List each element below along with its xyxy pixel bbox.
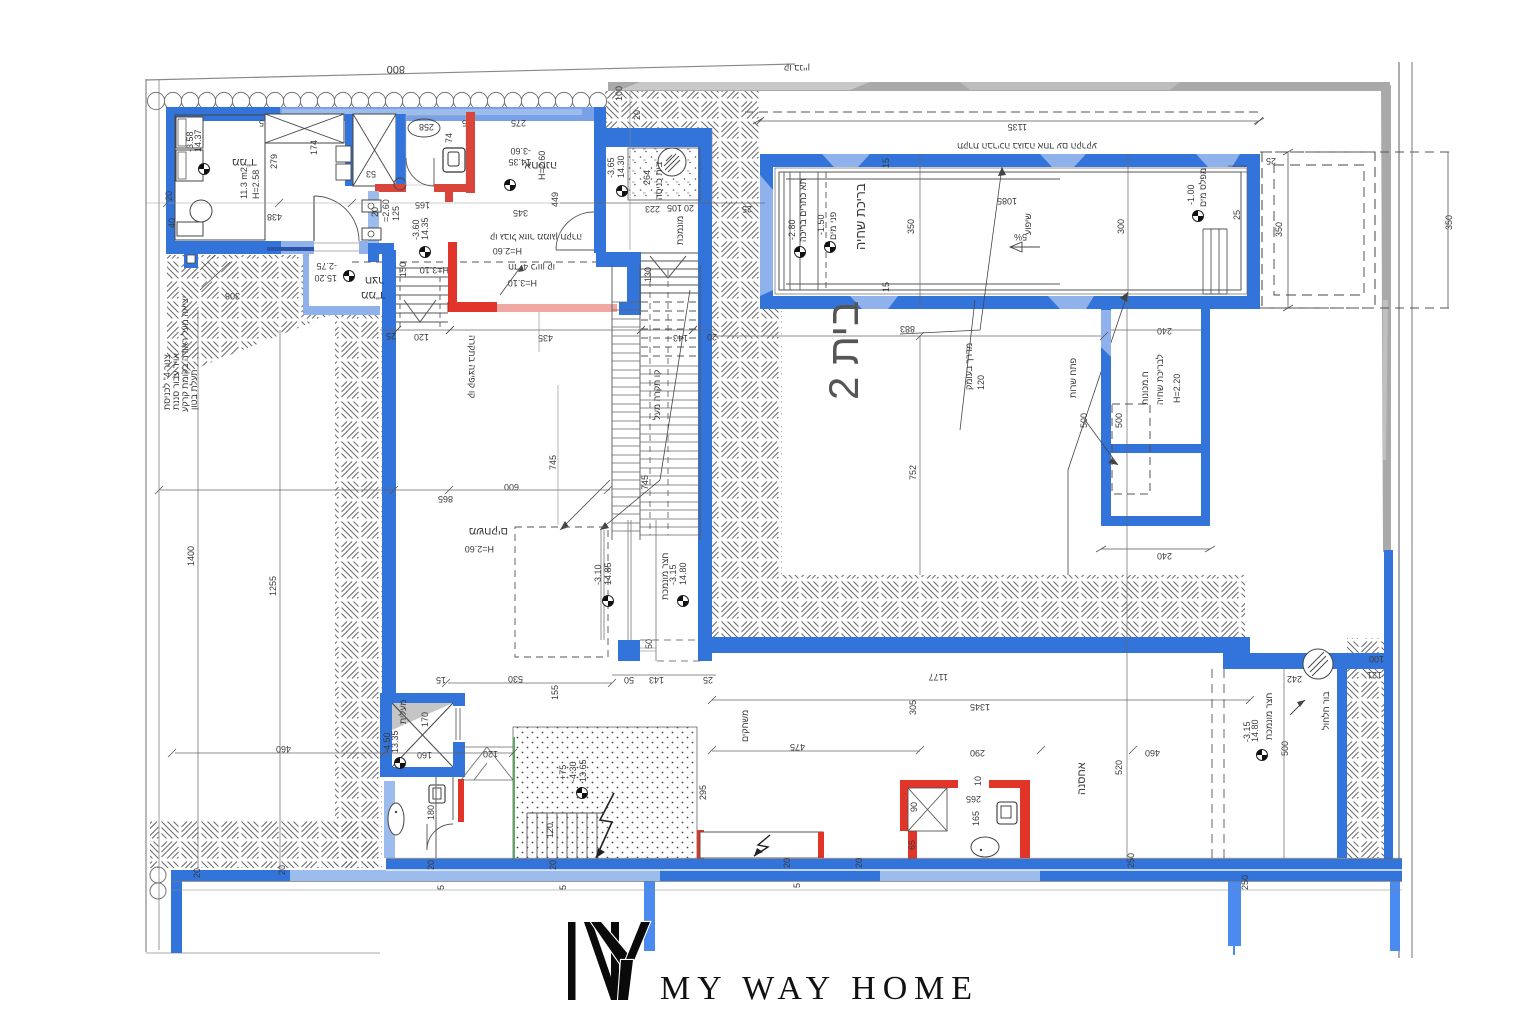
svg-text:40: 40 [167, 218, 177, 228]
svg-text:20: 20 [548, 860, 558, 870]
svg-text:800: 800 [387, 63, 405, 75]
svg-text:חד' 4 כיוון קו: חד' 4 כיוון קו [508, 262, 555, 272]
svg-text:1135: 1135 [1008, 122, 1027, 132]
svg-text:155: 155 [550, 685, 560, 700]
svg-text:14.30: 14.30 [616, 155, 626, 178]
svg-text:160: 160 [417, 750, 432, 760]
svg-text:13.35: 13.35 [390, 730, 400, 753]
svg-text:חצר מונמכת: חצר מונמכת [1264, 693, 1274, 740]
svg-text:בור חלחול: בור חלחול [1321, 691, 1331, 730]
svg-text:53: 53 [366, 169, 376, 179]
svg-text:475: 475 [790, 742, 805, 752]
svg-text:ממ"ד: ממ"ד [361, 289, 386, 301]
svg-text:240: 240 [1157, 326, 1172, 336]
svg-text:1400: 1400 [186, 546, 196, 566]
svg-text:קו קפיצה בתקרה: קו קפיצה בתקרה [467, 335, 477, 398]
svg-text:250: 250 [1240, 875, 1250, 890]
svg-text:20: 20 [277, 865, 287, 875]
svg-text:15: 15 [436, 675, 446, 685]
svg-text:H=2.60: H=2.60 [493, 246, 522, 256]
svg-text:100: 100 [1369, 654, 1384, 664]
svg-text:125: 125 [391, 206, 401, 221]
svg-text:223: 223 [645, 204, 660, 214]
svg-text:74: 74 [444, 133, 454, 143]
svg-text:25: 25 [742, 204, 752, 214]
svg-text:20: 20 [632, 110, 642, 120]
svg-text:-1.50: -1.50 [816, 214, 826, 235]
svg-text:קו גבול אזור ממוגן תקרה: קו גבול אזור ממוגן תקרה [490, 232, 582, 242]
svg-text:5: 5 [792, 883, 802, 888]
svg-text:חצר מונמכת: חצר מונמכת [660, 553, 670, 600]
svg-text:14.80: 14.80 [678, 562, 688, 585]
svg-text:H=2.20: H=2.20 [1172, 374, 1182, 403]
svg-text:MY WAY HOME: MY WAY HOME [660, 970, 979, 1007]
svg-text:143: 143 [673, 333, 688, 343]
svg-text:H=2.58: H=2.58 [251, 170, 261, 199]
svg-text:438: 438 [267, 212, 282, 222]
svg-text:ממ"ד: ממ"ד [232, 156, 257, 168]
svg-text:120: 120 [976, 375, 986, 390]
svg-text:15.20: 15.20 [314, 273, 337, 283]
svg-text:14.85: 14.85 [603, 562, 613, 585]
svg-text:345: 345 [513, 208, 528, 218]
svg-text:5: 5 [558, 885, 568, 890]
svg-text:752: 752 [908, 465, 918, 480]
svg-text:65: 65 [907, 840, 917, 850]
svg-text:500: 500 [1114, 413, 1124, 428]
svg-text:165: 165 [971, 811, 981, 826]
svg-text:קו בניין: קו בניין [784, 63, 810, 73]
svg-text:משחקים: משחקים [740, 710, 750, 742]
svg-text:-3.10: -3.10 [593, 564, 603, 585]
svg-text:H=3.10: H=3.10 [508, 278, 537, 288]
svg-text:20: 20 [684, 203, 694, 213]
svg-text:250: 250 [1126, 853, 1136, 868]
svg-text:14.80: 14.80 [1250, 719, 1260, 742]
svg-text:תעלת בטון: תעלת בטון [189, 369, 199, 410]
svg-text:ח.מכונות: ח.מכונות [1140, 371, 1150, 405]
svg-text:20: 20 [426, 860, 436, 870]
svg-text:350: 350 [1274, 222, 1284, 237]
svg-text:290: 290 [970, 748, 985, 758]
svg-text:105: 105 [667, 203, 682, 213]
svg-text:143: 143 [649, 675, 664, 685]
svg-text:120: 120 [483, 749, 498, 759]
svg-text:אחסנה: אחסנה [1076, 762, 1088, 795]
svg-text:130: 130 [643, 267, 653, 282]
svg-text:460: 460 [1145, 748, 1160, 758]
svg-text:בית 2: בית 2 [820, 301, 867, 400]
svg-text:100: 100 [614, 86, 624, 101]
svg-text:בית כניסה: בית כניסה [654, 161, 664, 200]
svg-text:20: 20 [707, 332, 717, 342]
svg-text:865: 865 [438, 494, 453, 504]
svg-text:H=2.60: H=2.60 [465, 544, 494, 554]
svg-text:+75: +75 [558, 765, 568, 780]
svg-text:חצר: חצר [365, 274, 384, 286]
svg-text:520: 520 [1114, 760, 1124, 775]
svg-text:120: 120 [545, 823, 555, 838]
svg-text:165: 165 [415, 200, 430, 210]
svg-text:1255: 1255 [268, 576, 278, 596]
svg-text:14.37: 14.37 [193, 129, 203, 152]
svg-text:279: 279 [269, 154, 279, 169]
svg-text:25: 25 [703, 675, 713, 685]
svg-text:275: 275 [511, 118, 526, 128]
svg-text:-2.75: -2.75 [316, 261, 337, 271]
svg-text:350: 350 [906, 219, 916, 234]
svg-text:מונמכת: מונמכת [675, 216, 685, 245]
svg-text:14.35: 14.35 [420, 217, 430, 240]
svg-text:11.3 m2: 11.3 m2 [239, 167, 249, 199]
svg-text:20: 20 [370, 207, 380, 217]
svg-text:תא כתרים בריכה: תא כתרים בריכה [798, 178, 808, 242]
svg-text:25: 25 [1232, 210, 1242, 220]
svg-text:20: 20 [782, 858, 792, 868]
svg-text:500: 500 [1079, 413, 1089, 428]
svg-text:-3.65: -3.65 [606, 157, 616, 178]
svg-text:500: 500 [1280, 741, 1290, 756]
svg-text:10: 10 [973, 776, 983, 786]
svg-text:240: 240 [1157, 551, 1172, 561]
svg-text:242: 242 [1287, 674, 1302, 684]
svg-text:H=3.10: H=3.10 [420, 265, 449, 275]
svg-text:350: 350 [1444, 215, 1454, 230]
svg-text:121: 121 [1367, 670, 1382, 680]
svg-text:120: 120 [414, 332, 429, 342]
svg-text:150: 150 [398, 262, 408, 277]
svg-text:1345: 1345 [970, 702, 990, 712]
svg-text:פתח שרות: פתח שרות [1068, 358, 1078, 398]
svg-text:מעלית: מעלית [398, 700, 408, 724]
svg-text:20: 20 [164, 191, 174, 201]
svg-text:745: 745 [548, 455, 558, 470]
svg-text:13.65: 13.65 [578, 759, 588, 782]
svg-text:1177: 1177 [929, 672, 948, 682]
svg-text:90: 90 [909, 802, 919, 812]
svg-text:5: 5 [436, 885, 446, 890]
svg-text:50: 50 [644, 639, 654, 649]
svg-text:משחקים: משחקים [469, 525, 508, 537]
svg-text:180: 180 [426, 805, 436, 820]
svg-text:295: 295 [698, 785, 708, 800]
svg-text:15: 15 [881, 158, 891, 168]
svg-text:-1.00: -1.00 [1186, 184, 1196, 205]
svg-text:460: 460 [276, 744, 291, 754]
svg-text:264: 264 [642, 170, 652, 185]
svg-text:449: 449 [550, 192, 560, 207]
svg-text:שיפוע: שיפוע [1023, 213, 1033, 235]
svg-text:תקרת הבריכה בגובה אחד עם הקרקע: תקרת הבריכה בגובה אחד עם הקרקע [957, 141, 1097, 151]
svg-text:745: 745 [640, 475, 650, 490]
svg-text:265: 265 [966, 794, 981, 804]
svg-text:פני מים: פני מים [828, 212, 838, 240]
svg-text:308: 308 [225, 291, 240, 301]
svg-text:-4.30: -4.30 [568, 761, 578, 782]
svg-text:-2.80: -2.80 [787, 219, 797, 240]
svg-text:258: 258 [419, 122, 434, 132]
svg-text:25: 25 [386, 331, 396, 341]
svg-text:בריכת שחיה: בריכת שחיה [853, 183, 868, 250]
svg-text:15: 15 [881, 282, 891, 292]
svg-text:530: 530 [508, 674, 523, 684]
svg-text:לבריכת שחיה: לבריכת שחיה [1155, 354, 1165, 405]
svg-text:H=2.60: H=2.60 [537, 151, 547, 180]
svg-text:-3.60: -3.60 [510, 146, 531, 156]
svg-text:1085: 1085 [997, 196, 1017, 206]
svg-text:50: 50 [624, 675, 634, 685]
svg-text:174: 174 [309, 140, 319, 155]
svg-text:14.35: 14.35 [508, 157, 531, 167]
svg-text:435: 435 [538, 333, 553, 343]
svg-text:מפלס מים: מפלס מים [1198, 168, 1208, 207]
svg-text:883: 883 [900, 324, 915, 334]
svg-text:25: 25 [1266, 156, 1276, 166]
svg-text:170: 170 [420, 712, 430, 727]
svg-text:305: 305 [908, 700, 918, 715]
svg-text:20: 20 [192, 868, 202, 878]
svg-text:=2.60: =2.60 [381, 199, 391, 222]
svg-text:קו תקרה מעל: קו תקרה מעל [652, 370, 662, 420]
svg-text:600: 600 [504, 482, 519, 492]
svg-text:20: 20 [854, 858, 864, 868]
svg-text:300: 300 [1116, 219, 1126, 234]
